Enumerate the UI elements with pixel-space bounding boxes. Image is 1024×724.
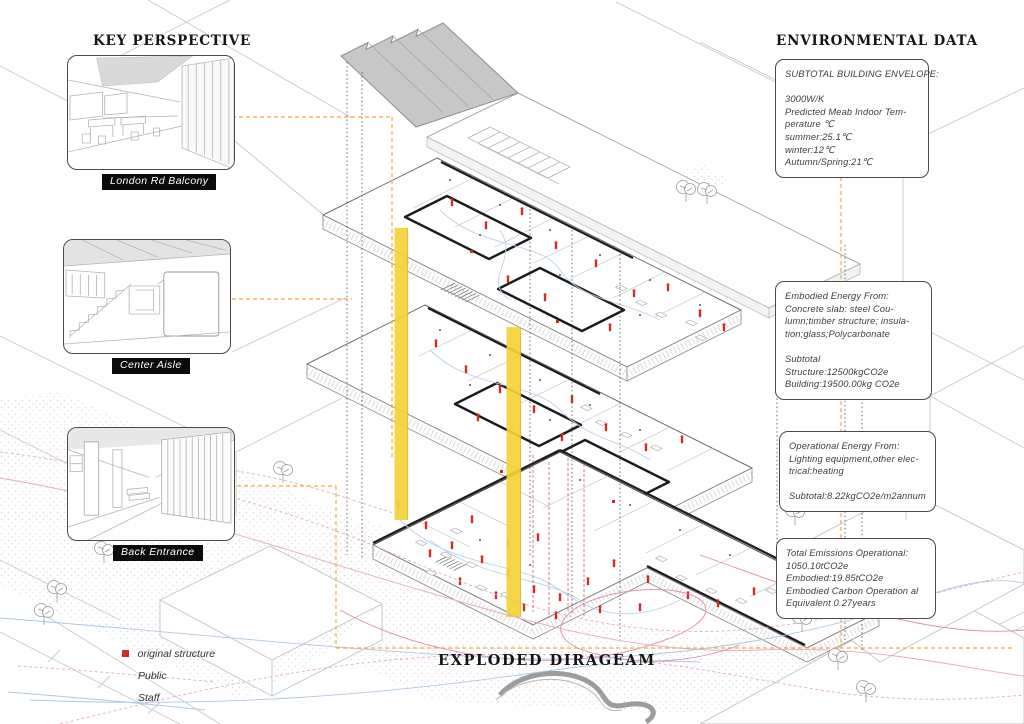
env-text-line: Total Emissions Operational:	[786, 547, 926, 560]
env-text-line: Subtotal	[785, 353, 922, 366]
env-text-line: Predicted Meab Indoor Tem-	[785, 106, 919, 119]
env-text-line: winter:12℃	[785, 144, 919, 157]
env-text-line: Autumn/Spring:21℃	[785, 156, 919, 169]
env-box-building-envelope: SUBTOTAL BUILDING ENVELOPE: 3000W/K Pred…	[775, 59, 929, 178]
env-text-line: Building:19500.00kg CO2e	[785, 378, 922, 391]
perspective-card-london-rd-balcony	[67, 55, 235, 170]
env-text-line: Lighting equipment,other elec-	[789, 453, 926, 466]
env-text-line	[785, 81, 919, 94]
perspective-label-back-entrance: Back Entrance	[113, 545, 203, 561]
env-text-line: Subtotal:8.22kgCO2e/m2annum	[789, 490, 926, 503]
presentation-board: KEY PERSPECTIVE London Rd Balcony Center…	[0, 0, 1024, 724]
legend-item-public: Public	[122, 669, 215, 682]
env-text-line: Equivalent 0.27years	[786, 597, 926, 610]
legend-item-original-structure: original structure	[122, 647, 215, 660]
perspective-sketch-back-entrance	[68, 428, 234, 540]
env-text-line: lumn;timber structure; insula-	[785, 315, 922, 328]
env-text-line: perature ℃	[785, 118, 919, 131]
legend-label: original structure	[138, 648, 216, 660]
env-text-line: summer:25.1℃	[785, 131, 919, 144]
env-text-line: Structure:12500kgCO2e	[785, 366, 922, 379]
env-text-line: Operational Energy From:	[789, 440, 926, 453]
perspective-label-london-rd-balcony: London Rd Balcony	[102, 174, 216, 190]
legend-label: Staff	[138, 692, 160, 704]
env-text-line: Embodied Energy From:	[785, 290, 922, 303]
perspective-card-center-aisle	[63, 239, 231, 354]
env-text-line: Embodied Carbon Operation al	[786, 585, 926, 598]
legend-label: Public	[138, 670, 167, 682]
env-box-operational-energy: Operational Energy From: Lighting equipm…	[779, 431, 936, 512]
env-text-line: SUBTOTAL BUILDING ENVELOPE:	[785, 68, 919, 81]
env-text-line: Concrete slab: steel Cou-	[785, 303, 922, 316]
env-text-line	[789, 478, 926, 491]
red-square-swatch-icon	[122, 650, 129, 657]
perspective-sketch-center-aisle	[64, 240, 230, 353]
env-text-line: Embodied:19.85tCO2e	[786, 572, 926, 585]
env-box-total-emissions: Total Emissions Operational: 1050.10tCO2…	[776, 538, 936, 619]
perspective-sketch-balcony	[68, 56, 234, 169]
environmental-data-title: ENVIRONMENTAL DATA	[776, 33, 978, 49]
legend-item-staff: Staff	[122, 691, 215, 704]
perspective-card-back-entrance	[67, 427, 235, 541]
legend: original structure Public Staff	[122, 647, 215, 713]
env-text-line: tion;glass;Polycarbonate	[785, 328, 922, 341]
env-text-line: 1050.10tCO2e	[786, 560, 926, 573]
env-text-line	[785, 340, 922, 353]
env-text-line: trical:heating	[789, 465, 926, 478]
env-box-embodied-energy: Embodied Energy From: Concrete slab: ste…	[775, 281, 932, 400]
exploded-diagram-title: EXPLODED DIRAGEAM	[438, 652, 656, 669]
env-text-line: 3000W/K	[785, 93, 919, 106]
key-perspective-title: KEY PERSPECTIVE	[93, 33, 251, 49]
perspective-label-center-aisle: Center Aisle	[112, 358, 190, 374]
